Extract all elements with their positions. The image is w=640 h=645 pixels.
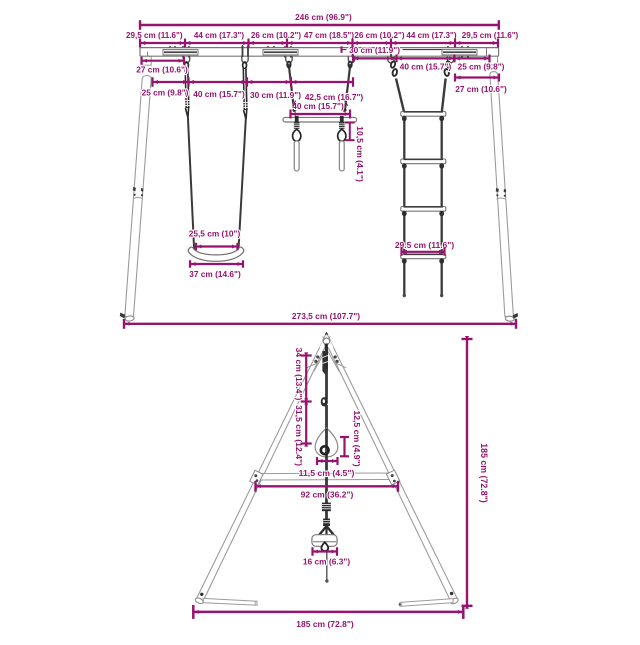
svg-text:37 cm (14.6"): 37 cm (14.6") — [189, 269, 241, 279]
svg-text:11,5 cm (4.5"): 11,5 cm (4.5") — [299, 468, 355, 478]
svg-text:12,5 cm (4.9"): 12,5 cm (4.9") — [352, 410, 362, 466]
svg-text:40 cm (15.7"): 40 cm (15.7") — [292, 101, 344, 111]
svg-text:29,5 cm (11.6"): 29,5 cm (11.6") — [126, 31, 183, 40]
svg-text:185 cm (72.8"): 185 cm (72.8") — [479, 443, 489, 503]
svg-text:47 cm (18.5"): 47 cm (18.5") — [304, 31, 354, 40]
svg-text:273,5 cm (107.7"): 273,5 cm (107.7") — [292, 311, 360, 321]
svg-text:44 cm (17.3"): 44 cm (17.3") — [194, 31, 244, 40]
svg-text:26 cm (10.2"): 26 cm (10.2") — [251, 31, 301, 40]
svg-text:31,5 cm (12.4"): 31,5 cm (12.4") — [294, 405, 304, 466]
svg-text:40 cm (15.7"): 40 cm (15.7") — [193, 89, 245, 99]
svg-text:16 cm (6.3"): 16 cm (6.3") — [303, 556, 350, 566]
svg-text:10,5 cm (4.1"): 10,5 cm (4.1") — [355, 126, 365, 182]
svg-text:246 cm (96.9"): 246 cm (96.9") — [295, 13, 352, 22]
svg-text:185 cm (72.8"): 185 cm (72.8") — [296, 619, 354, 629]
svg-text:40 cm (15.7"): 40 cm (15.7") — [400, 62, 452, 72]
svg-text:25 cm (9.8"): 25 cm (9.8") — [458, 62, 505, 72]
svg-text:30 cm (11.9"): 30 cm (11.9") — [250, 90, 301, 100]
svg-text:30 cm (11.9"): 30 cm (11.9") — [349, 45, 400, 55]
svg-text:26 cm (10.2"): 26 cm (10.2") — [354, 31, 404, 40]
svg-text:25 cm (9.8"): 25 cm (9.8") — [142, 88, 189, 98]
svg-text:25,5 cm (10"): 25,5 cm (10") — [189, 228, 241, 238]
svg-text:27 cm (10.6"): 27 cm (10.6") — [455, 84, 507, 94]
svg-text:29,5 cm (11.6"): 29,5 cm (11.6") — [462, 31, 519, 40]
svg-text:27 cm (10.6"): 27 cm (10.6") — [136, 65, 188, 75]
svg-text:92 cm (36.2"): 92 cm (36.2") — [301, 490, 354, 500]
svg-text:44 cm (17.3"): 44 cm (17.3") — [406, 31, 456, 40]
